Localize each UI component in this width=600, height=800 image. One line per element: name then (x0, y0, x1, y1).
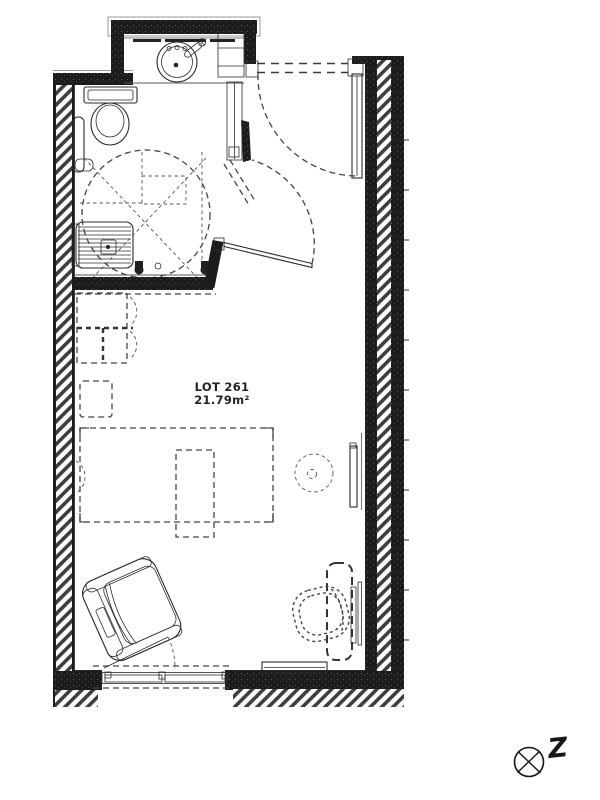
bed (76, 428, 273, 522)
window-swing-arc (168, 637, 175, 669)
storage-square (80, 381, 112, 417)
bathroom-door (214, 160, 314, 268)
living-area (76, 293, 362, 690)
armchair (78, 554, 185, 665)
lot-label-group: LOT 261 21.79m² (194, 380, 250, 407)
entrance (246, 59, 363, 178)
wheelchair-turning-circle (80, 150, 210, 287)
window-swing-line (104, 637, 168, 668)
floor-plan-sheet: LOT 261 21.79m² Z (0, 0, 600, 800)
north-letter: Z (545, 732, 569, 765)
wardrobe (77, 293, 137, 363)
wall-tick-marks (404, 140, 409, 640)
desk (327, 563, 362, 660)
lot-label: LOT 261 (195, 380, 250, 394)
area-label: 21.79m² (194, 393, 250, 407)
side-table (295, 454, 333, 492)
washbasin (157, 39, 206, 82)
french-window (93, 637, 233, 690)
wall-panel (350, 433, 362, 510)
north-compass: Z (515, 732, 570, 776)
desk-chair (289, 582, 354, 646)
floor-plan-drawing: LOT 261 21.79m² Z (0, 0, 600, 800)
entrance-door (258, 74, 362, 178)
duct (227, 82, 251, 162)
toilet (84, 87, 137, 145)
overbed-table (176, 450, 214, 537)
